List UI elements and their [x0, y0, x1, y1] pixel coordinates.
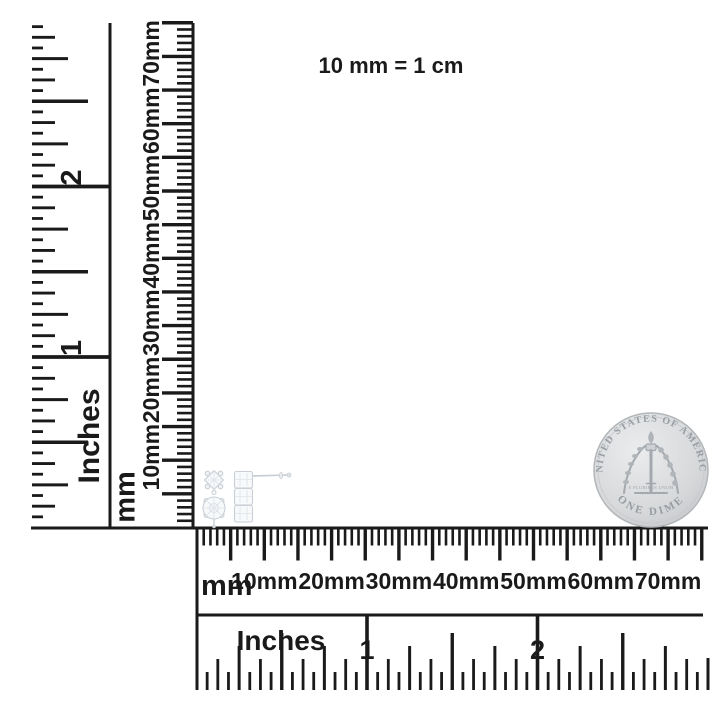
horizontal-mm-ruler: 10mm20mm30mm40mm50mm60mm70mm — [204, 530, 702, 595]
peg-tip — [213, 525, 216, 528]
vertical-mm-ruler: 10mm20mm30mm40mm50mm60mm70mm — [138, 20, 193, 527]
stone-facets — [203, 497, 225, 519]
link — [212, 491, 216, 495]
mm-number: 50mm — [500, 568, 566, 594]
mm-number: 50mm — [138, 155, 164, 221]
earring-back — [279, 472, 282, 478]
mm-number: 60mm — [138, 87, 164, 153]
inch-number: 2 — [56, 169, 88, 185]
horizontal-inches-unit-label: Inches — [237, 627, 326, 655]
rulers: 1210mm20mm30mm40mm50mm60mm70mm10mm20mm30… — [0, 0, 720, 720]
jewelry-measurement-image: 1210mm20mm30mm40mm50mm60mm70mm10mm20mm30… — [0, 0, 720, 720]
mm-number: 40mm — [433, 568, 499, 594]
inch-number: 1 — [359, 635, 374, 665]
vertical-mm-unit-label: mm — [112, 471, 141, 523]
mm-number: 70mm — [138, 20, 164, 86]
earrings-photo — [194, 462, 298, 534]
ruler-frame — [31, 528, 708, 690]
mm-number: 20mm — [298, 568, 364, 594]
mm-number: 40mm — [138, 222, 164, 288]
dime-coin: UNITED STATES OF AMERICA ONE DIME E PLUR… — [588, 411, 714, 531]
mm-number: 10mm — [138, 424, 164, 490]
mm-number: 60mm — [568, 568, 634, 594]
inch-number: 2 — [530, 635, 545, 665]
mm-number: 20mm — [138, 357, 164, 423]
scale-note: 10 mm = 1 cm — [319, 55, 464, 77]
coin-motto-text: E PLURIBUS UNUM — [629, 485, 674, 490]
horizontal-mm-unit-label: mm — [201, 572, 253, 601]
mm-number: 30mm — [366, 568, 432, 594]
post-tip — [287, 473, 291, 477]
inch-number: 1 — [56, 340, 88, 356]
mm-number: 30mm — [138, 289, 164, 355]
earring-side-view — [235, 472, 292, 523]
vertical-inches-unit-label: Inches — [75, 388, 105, 483]
earring-front-view — [203, 471, 225, 528]
mm-number: 70mm — [635, 568, 701, 594]
